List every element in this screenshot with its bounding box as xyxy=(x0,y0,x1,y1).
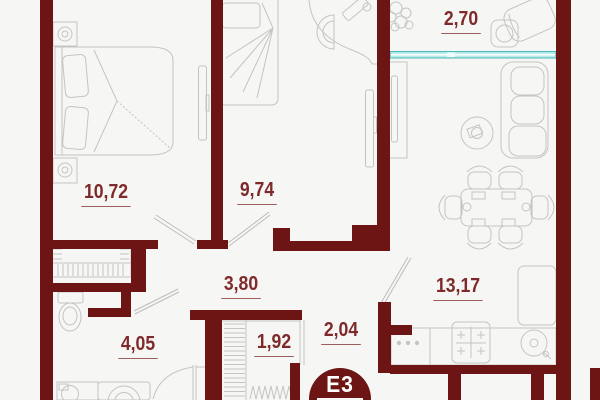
sink xyxy=(521,330,551,359)
toilet xyxy=(58,292,83,303)
room-area-label-child-room: 9,74 xyxy=(237,180,277,205)
child-room-door xyxy=(228,212,270,246)
pillow xyxy=(222,3,260,28)
room-area-label-kitchen-living: 13,17 xyxy=(433,276,482,301)
room-area-label-bedroom: 10,72 xyxy=(81,182,130,207)
dining-chairs xyxy=(439,166,554,249)
coffee-table xyxy=(461,117,493,149)
wall-corridor-top xyxy=(273,241,385,251)
side-table xyxy=(491,20,518,47)
bedroom-door xyxy=(154,215,196,244)
plant xyxy=(386,2,413,31)
room-area-label-wardrobe: 1,92 xyxy=(254,332,294,357)
kitchen-door xyxy=(381,257,411,304)
nightstand xyxy=(53,158,77,183)
room-area-label-balcony: 2,70 xyxy=(441,9,481,34)
desk-chair xyxy=(317,15,334,49)
washing-machine xyxy=(98,382,150,400)
wall-bottom xyxy=(390,365,556,374)
kitchen-living-furniture xyxy=(388,62,556,365)
double-bed xyxy=(55,47,173,155)
room-area-label-bathroom: 4,05 xyxy=(118,334,158,359)
desk xyxy=(309,0,377,64)
sofa xyxy=(501,62,548,158)
room-area-label-entry-hall: 2,04 xyxy=(321,320,361,345)
floorplan-page: 10,72 9,74 2,70 3,80 4,05 1,92 2,04 13,1… xyxy=(0,0,600,400)
door-arc xyxy=(153,367,193,399)
wall-bedroom-divider xyxy=(211,0,223,241)
nightstand xyxy=(53,22,77,46)
wall-tv xyxy=(199,66,207,140)
armchair xyxy=(501,0,559,44)
wall-wardrobe-left xyxy=(205,310,222,400)
bedroom-furniture xyxy=(53,22,209,183)
counter-return xyxy=(518,266,556,325)
entrance-marker-label: E3 xyxy=(311,373,368,396)
tv xyxy=(392,76,398,142)
room-area-label-hallway: 3,80 xyxy=(221,274,261,299)
window-glazing xyxy=(390,52,556,59)
wall-tv xyxy=(366,90,374,167)
wall-bathroom-top xyxy=(53,283,131,292)
pillow xyxy=(62,106,89,150)
entrance-marker: E3 xyxy=(309,368,371,400)
wall-right-outer xyxy=(556,0,571,400)
child-room-furniture xyxy=(219,0,377,167)
wall-bedroom-bottom xyxy=(53,240,158,249)
wall-left-outer xyxy=(40,0,53,400)
pillow xyxy=(62,54,89,98)
single-bed xyxy=(219,0,278,105)
wall-living-divider xyxy=(377,0,390,251)
bathroom-door xyxy=(134,289,179,314)
shelving-hatch xyxy=(224,324,245,396)
